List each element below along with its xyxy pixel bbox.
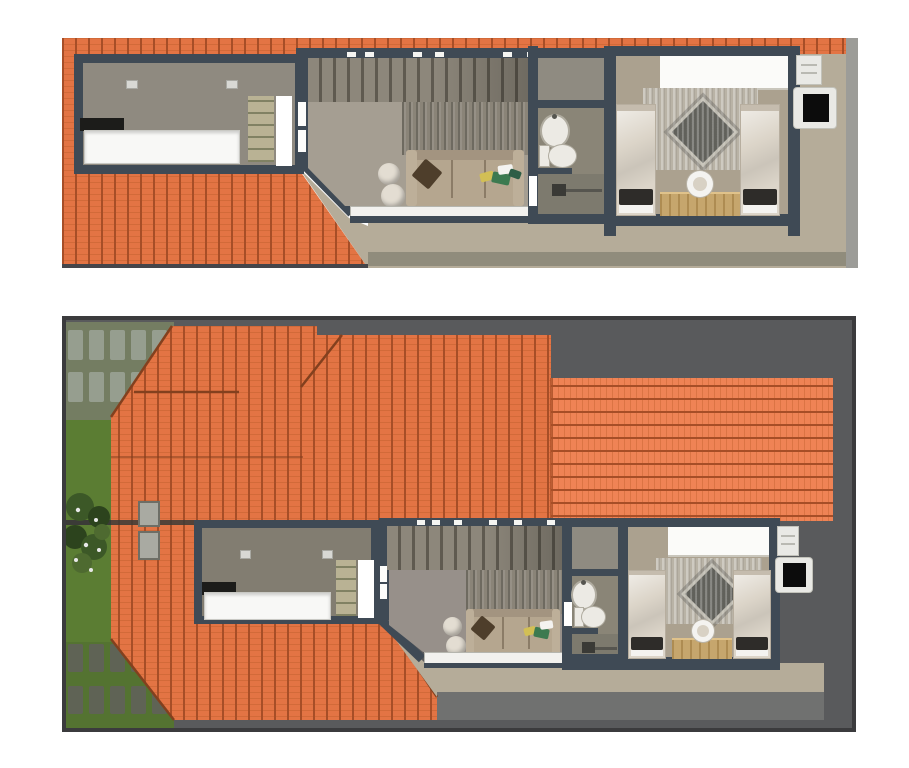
bathroom-door-opening — [564, 602, 572, 626]
ac-condenser — [778, 527, 798, 555]
bedroom-top-wall — [604, 46, 800, 56]
stair-rail-post — [503, 52, 512, 57]
kitchen — [194, 520, 379, 624]
bed-pillow — [631, 637, 663, 650]
kitchen-door-opening — [276, 96, 292, 166]
stair-rail-post — [347, 52, 356, 57]
shower-floor — [538, 174, 604, 214]
stair-rail-post — [514, 520, 522, 525]
bathroom-door-opening — [529, 176, 537, 206]
wardrobe-curtain — [466, 570, 562, 614]
closet-nook-floor — [572, 527, 618, 569]
shrubs — [66, 493, 110, 573]
toilet — [539, 144, 575, 166]
skylight — [139, 532, 159, 559]
faucet-dot — [552, 114, 557, 119]
window-slit — [298, 102, 306, 126]
stair-rail-post — [454, 520, 462, 525]
shelf-unit — [336, 560, 356, 616]
ac-condenser — [797, 56, 821, 84]
vent-line — [801, 64, 818, 66]
bathroom-divider-wall — [572, 569, 618, 576]
upper-floor-plan — [62, 38, 858, 268]
floor-plan-render — [0, 0, 909, 768]
vent-line — [801, 72, 818, 74]
balcony-base-wall — [350, 216, 546, 223]
bed-headboard — [629, 571, 665, 575]
sofa-backrest — [414, 150, 515, 160]
living-top-wall — [296, 48, 604, 58]
ac-screen — [803, 94, 829, 122]
stair-rail-post — [432, 520, 440, 525]
closet-nook-floor — [538, 58, 604, 100]
stair-rail-post — [365, 52, 374, 57]
shower-drain — [582, 642, 595, 653]
staircase — [387, 526, 562, 570]
wall-socket — [226, 80, 238, 89]
desk-chair — [687, 171, 713, 197]
stair-rail-post — [435, 52, 444, 57]
pouf — [443, 617, 462, 636]
bedroom-left-wall — [604, 46, 616, 236]
kitchen-door-opening — [358, 560, 374, 618]
bed-headboard — [741, 105, 779, 111]
stair-rail-post — [417, 520, 425, 525]
bathroom-divider-wall — [538, 100, 604, 108]
headboard-window — [668, 527, 769, 557]
pouf — [381, 184, 405, 208]
roof-level-plan — [62, 316, 856, 732]
kitchen — [74, 54, 304, 174]
wardrobe-curtain — [402, 102, 532, 155]
ac-screen — [783, 563, 806, 587]
bed-footboard-stripe — [736, 650, 768, 656]
kitchen-counter — [204, 592, 331, 620]
bed-footboard-stripe — [743, 205, 777, 213]
bed-pillow — [736, 637, 768, 650]
bed-footboard-stripe — [619, 205, 653, 213]
pouf — [378, 163, 400, 185]
rug-diamond-motif — [668, 97, 739, 168]
skylight — [139, 502, 159, 526]
shower-pipe — [595, 647, 617, 650]
bed-headboard — [617, 105, 655, 111]
shelf-unit — [248, 96, 274, 162]
stair-rail-post — [489, 520, 497, 525]
washbasin — [540, 114, 570, 148]
window-slit — [380, 584, 387, 599]
wall-socket — [126, 80, 138, 89]
vent-line — [781, 543, 795, 545]
terrace-lower-band — [368, 252, 846, 266]
toilet-bowl — [548, 144, 577, 168]
bed-pillow — [619, 189, 653, 206]
sofa — [466, 609, 560, 655]
bedroom-left-wall — [618, 518, 628, 670]
shower-pipe — [566, 189, 602, 192]
window-slit — [380, 566, 387, 582]
toilet-bowl — [581, 606, 606, 628]
sofa-arm — [552, 609, 560, 655]
wall-socket — [322, 550, 333, 559]
kitchen-counter — [84, 130, 240, 164]
bed-pillow — [743, 189, 777, 206]
right-edge-walkway — [846, 38, 858, 268]
sofa — [406, 150, 524, 206]
roof-valley-line — [550, 378, 553, 521]
headboard-window — [660, 56, 788, 90]
stair-rail-post — [413, 52, 422, 57]
desk-chair — [692, 620, 714, 642]
bed-footboard-stripe — [631, 650, 663, 656]
toilet — [574, 606, 604, 626]
ac-unit — [776, 558, 812, 592]
twin-bed-right — [740, 104, 780, 216]
throw-pillow-brown — [470, 615, 495, 640]
cushion-seam — [451, 160, 453, 198]
wall-socket — [240, 550, 251, 559]
sofa-backrest — [473, 609, 554, 617]
faucet-dot — [581, 580, 586, 585]
staircase — [308, 58, 532, 102]
shower-drain — [552, 184, 566, 196]
hip-roof-right-wing — [551, 378, 833, 521]
balcony-base-wall — [424, 663, 576, 668]
stair-rail-post — [547, 520, 555, 525]
twin-bed-left — [616, 104, 656, 216]
twin-bed-right — [733, 570, 771, 659]
bed-headboard — [734, 571, 770, 575]
vent-line — [781, 535, 795, 537]
cushion-seam — [502, 617, 504, 648]
window-slit — [298, 130, 306, 152]
twin-bed-left — [628, 570, 666, 659]
ac-unit — [794, 88, 836, 128]
